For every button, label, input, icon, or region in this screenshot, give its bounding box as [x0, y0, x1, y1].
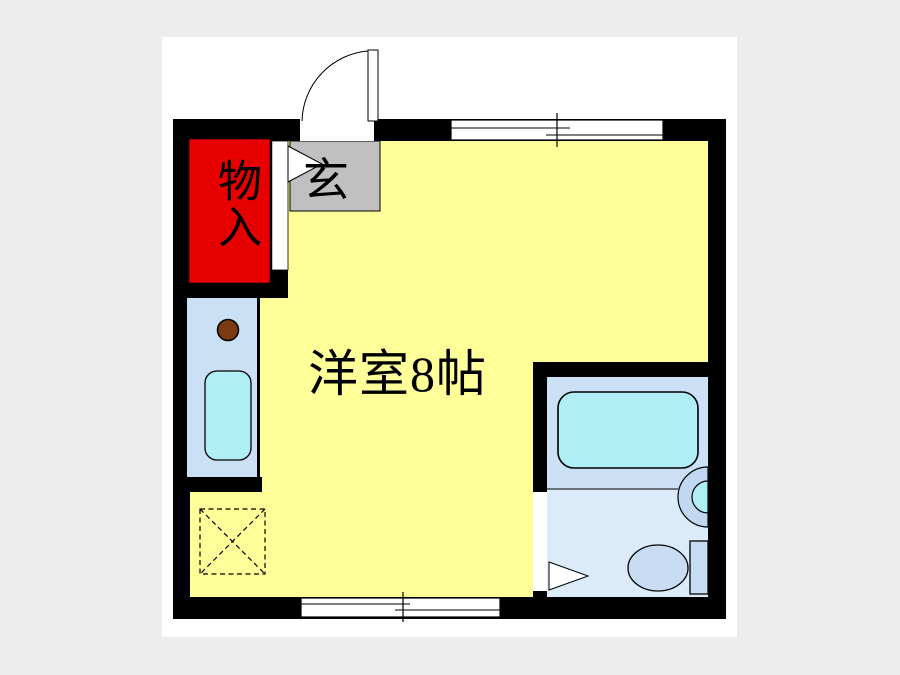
- bathtub: [558, 392, 698, 468]
- kitchen-bottom-wall: [176, 477, 262, 492]
- entrance-doorway: [300, 119, 374, 141]
- bathroom-door-opening: [533, 492, 547, 591]
- storage-label: 物入: [204, 158, 258, 278]
- gas-burner: [218, 320, 239, 341]
- toilet-tank: [690, 541, 708, 594]
- bathroom-left-wall-stub: [533, 591, 547, 597]
- bathroom-left-wall: [533, 377, 547, 492]
- kitchen-sink: [205, 371, 251, 460]
- main-room-label: 洋室8帖: [308, 334, 487, 406]
- window-frame: [301, 598, 500, 617]
- storage-door: [271, 141, 288, 270]
- bathroom-top-wall: [533, 362, 708, 377]
- kitchen-partition: [257, 298, 260, 477]
- entrance-label: 玄: [303, 144, 349, 210]
- entrance-door-leaf: [368, 50, 378, 121]
- toilet-bowl: [628, 545, 688, 591]
- floor-plan-image: 物入 玄 洋室8帖: [0, 0, 900, 675]
